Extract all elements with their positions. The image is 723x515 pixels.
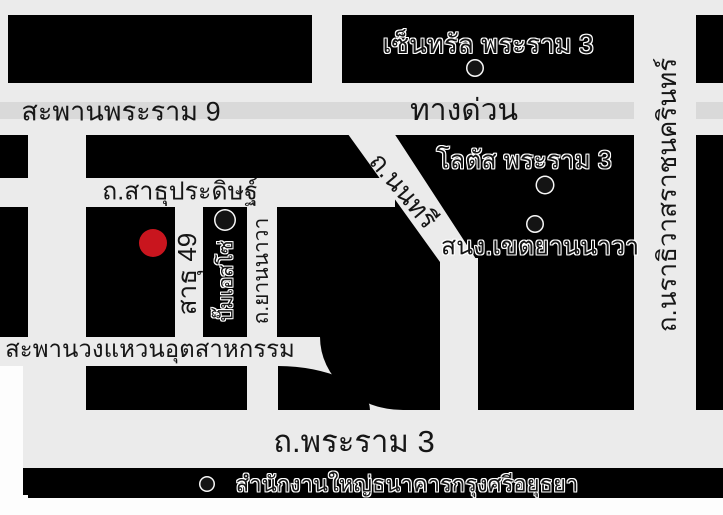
- road-nonsee-vertical: [440, 258, 478, 412]
- map-margin-bottom: [0, 495, 723, 515]
- poi-label-yannawa-district-office: สนง.เขตยานนาวา: [441, 233, 639, 262]
- poi-label-krungsri-bank-hq: สำนักงานใหญ่ธนาคารกรุงศรีอยุธยา: [236, 471, 578, 496]
- poi-label-lotus-rama3: โลตัส พระราม 3: [436, 147, 611, 176]
- road-label-sathupradit: ถ.สาธุประดิษฐ์: [102, 178, 258, 207]
- road-label-rama9-bridge: สะพานพระราม 9: [21, 96, 220, 127]
- poi-dot-yannawa-district-office: [528, 217, 543, 232]
- poi-label-esso-station: ปั๊มเอสโซ่: [216, 240, 239, 321]
- poi-label-central-rama3: เซ็นทรัล พระราม 3: [382, 30, 593, 60]
- map-canvas: สะพานพระราม 9 ทางด่วน ถ.นราธิวาสราชนคริน…: [0, 0, 723, 515]
- road-label-industrial-ring-bridge: สะพานวงแหวนอุตสาหกรรม: [5, 336, 295, 364]
- road-side-street-north: [312, 15, 342, 83]
- poi-dot-lotus-rama3: [537, 177, 553, 193]
- road-label-rama3: ถ.พระราม 3: [273, 424, 434, 460]
- map-marker: [139, 229, 167, 257]
- road-label-yannawa: ถ.ยานนาวา: [250, 218, 274, 325]
- map-margin-left: [0, 15, 8, 83]
- block-below-ring-road: [86, 366, 247, 410]
- poi-dot-esso-station: [216, 211, 235, 230]
- poi-dot-krungsri-bank-hq: [201, 478, 214, 491]
- road-label-narathiwat: ถ.นราธิวาสราชนครินทร์: [653, 58, 683, 332]
- road-label-sathu49: สาธุ 49: [173, 233, 203, 315]
- map-margin-top: [0, 0, 723, 15]
- poi-dot-central-rama3: [468, 61, 483, 76]
- road-label-expressway: ทางด่วน: [410, 94, 518, 129]
- map-margin-bottom-left: [0, 366, 23, 515]
